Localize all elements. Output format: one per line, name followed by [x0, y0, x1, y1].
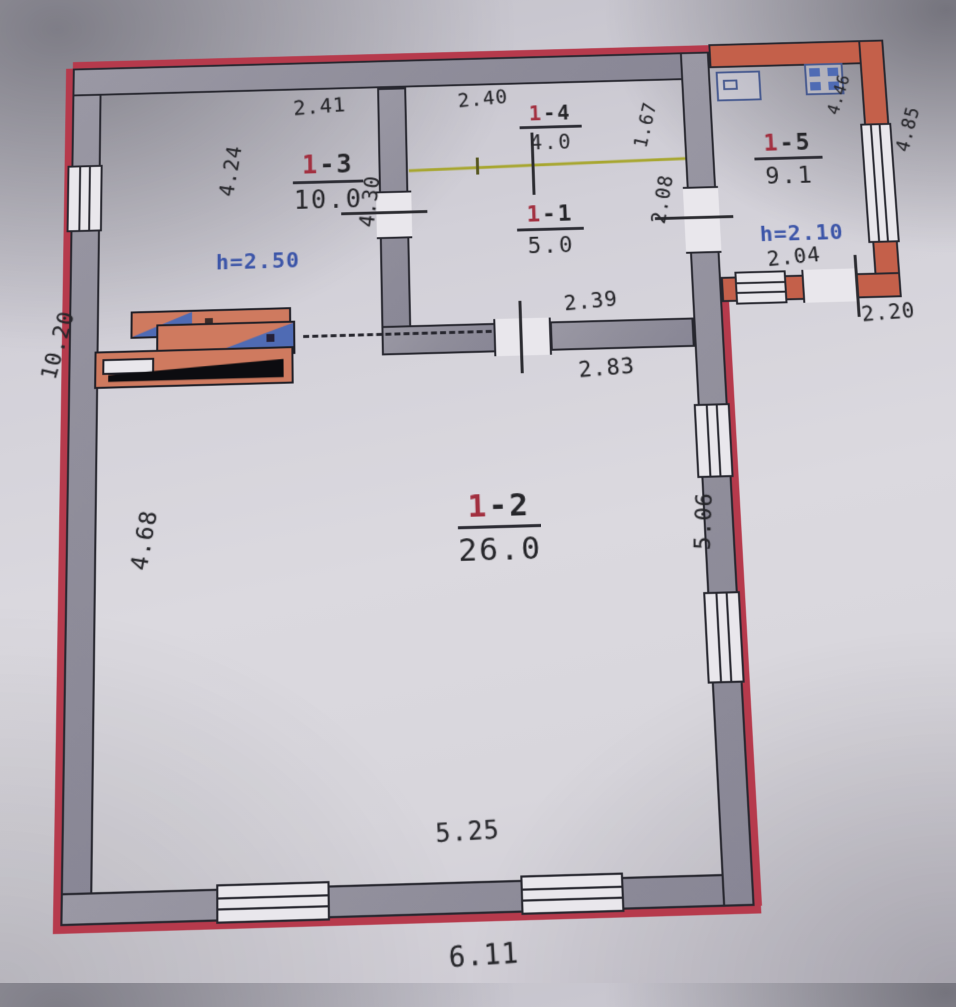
window-left-1-3 — [67, 165, 103, 232]
dim-top-1-4: 2.40 — [457, 85, 510, 112]
tick-light-partition-small — [476, 158, 479, 175]
window-east-upper — [694, 403, 734, 478]
dim-right-1-2: 5.06 — [690, 491, 717, 550]
room-1-1-suffix: -1 — [542, 201, 574, 227]
room-label-1-5: 1-5 9.1 — [729, 128, 849, 190]
window-bottom-west — [216, 881, 330, 924]
room-1-4-number: 1 — [528, 102, 543, 125]
dim-bottom-outer-1-5: 2.20 — [860, 298, 917, 326]
stove-vent-dot-2 — [266, 334, 274, 342]
door-annex-entrance — [801, 268, 858, 302]
room-1-3-number: 1 — [302, 151, 320, 180]
room-1-1-number: 1 — [526, 202, 542, 227]
window-east-lower — [703, 591, 745, 684]
cooker-burner — [810, 82, 821, 91]
room-1-2-suffix: -2 — [488, 487, 531, 525]
stove-furnace-symbol — [94, 307, 302, 393]
room-label-1-2: 1-2 26.0 — [418, 485, 582, 570]
dim-outer-right-1-5: 4.85 — [892, 104, 924, 155]
light-partition-line-1-4-1-1 — [409, 157, 686, 172]
height-label-1-5: h=2.10 — [759, 221, 844, 247]
room-1-4-suffix: -4 — [543, 102, 572, 125]
room-1-1-area: 5.0 — [497, 232, 606, 260]
dim-right-1-4: 1.67 — [630, 100, 661, 150]
door-1-1-to-1-5 — [683, 186, 722, 254]
floor-plan: 1-3 10.0 h=2.50 1-4 4.0 1-1 5.0 1-5 9.1 … — [17, 19, 956, 1007]
room-1-5-number: 1 — [763, 130, 781, 157]
room-1-5-suffix: -5 — [779, 129, 813, 156]
room-label-1-1: 1-1 5.0 — [496, 201, 606, 260]
dim-opening-1-2: 2.83 — [577, 354, 636, 383]
dim-bottom-1-1: 2.39 — [563, 287, 619, 315]
cooker-burner — [809, 68, 820, 77]
room-1-2-number: 1 — [467, 488, 489, 525]
stove-hearth-plate — [94, 346, 294, 389]
window-annex-south — [734, 270, 787, 304]
room-label-1-4: 1-4 4.0 — [497, 101, 606, 155]
dim-bottom-inner-1-5: 2.04 — [766, 243, 822, 271]
room-1-2-area: 26.0 — [419, 529, 582, 570]
washbasin-bowl — [723, 80, 738, 91]
dim-left-1-2: 4.68 — [126, 508, 163, 572]
partition-1-1-south-east — [550, 318, 695, 351]
dim-top-1-3: 2.41 — [293, 93, 347, 119]
room-1-4-area: 4.0 — [497, 130, 605, 155]
dim-bottom-inner-1-2: 5.25 — [435, 814, 501, 848]
window-bottom-east — [520, 873, 624, 915]
washbasin-icon — [716, 71, 762, 102]
room-1-5-area: 9.1 — [730, 161, 849, 191]
dim-bottom-outer: 6.11 — [448, 937, 520, 975]
partition-1-1-south-west — [381, 323, 496, 355]
room-1-3-suffix: -3 — [319, 151, 354, 180]
height-label-1-3: h=2.50 — [216, 249, 300, 275]
dim-left-1-3: 4.24 — [215, 144, 247, 198]
